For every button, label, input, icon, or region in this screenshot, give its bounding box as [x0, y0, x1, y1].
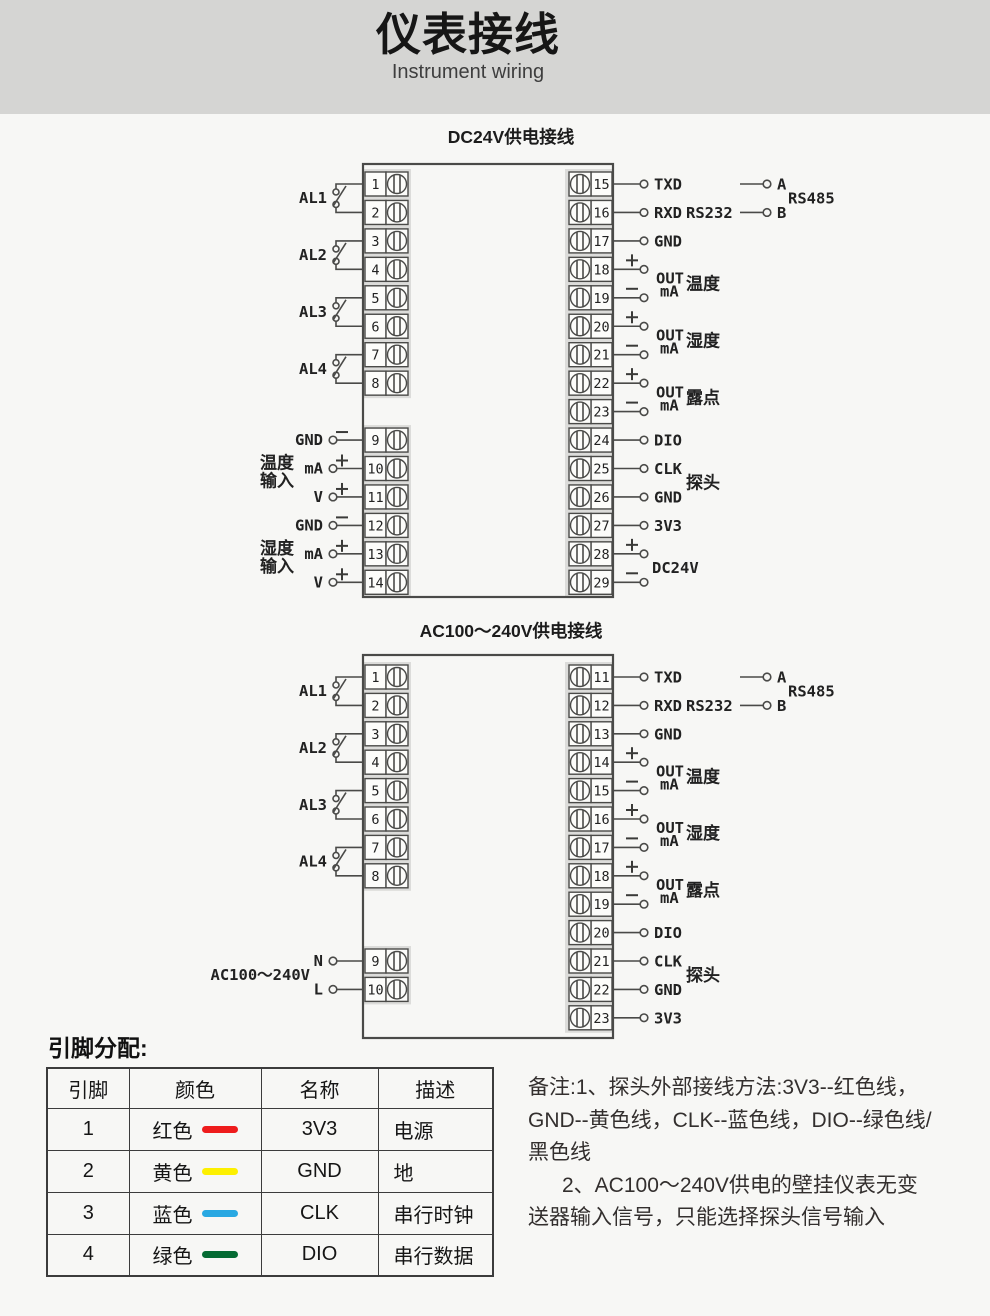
- svg-text:7: 7: [371, 840, 379, 856]
- wire-color-swatch: [202, 1168, 238, 1175]
- svg-text:GND: GND: [654, 488, 682, 506]
- ac-power-label: AC100～240V: [211, 966, 311, 984]
- svg-text:GND: GND: [654, 725, 682, 743]
- svg-text:L: L: [314, 980, 323, 998]
- alarm-label: AL2: [299, 246, 327, 264]
- svg-text:11: 11: [593, 670, 609, 686]
- wire-color-name: 红色: [153, 1115, 193, 1144]
- svg-text:GND: GND: [295, 431, 323, 449]
- pin-table-row: 1红色3V3电源: [47, 1108, 493, 1150]
- svg-text:mA: mA: [660, 889, 679, 907]
- pin-table-header-pin: 引脚: [47, 1068, 129, 1108]
- svg-text:V: V: [314, 573, 323, 591]
- svg-text:18: 18: [593, 869, 609, 885]
- svg-text:12: 12: [593, 698, 609, 714]
- svg-text:15: 15: [593, 177, 609, 193]
- svg-text:GND: GND: [654, 981, 682, 999]
- svg-text:14: 14: [593, 755, 609, 771]
- svg-text:mA: mA: [660, 339, 679, 357]
- signal-desc-cell: 串行数据: [378, 1234, 493, 1276]
- svg-text:mA: mA: [660, 396, 679, 414]
- diagram-title: DC24V供电接线: [448, 127, 575, 147]
- svg-text:TXD: TXD: [654, 669, 682, 687]
- alarm-label: AL3: [299, 796, 327, 814]
- wire-color-swatch: [202, 1126, 238, 1133]
- dc-power-label: DC24V: [652, 559, 699, 577]
- svg-text:17: 17: [593, 840, 609, 856]
- svg-text:20: 20: [593, 926, 609, 942]
- wire-color-cell: 绿色: [129, 1234, 261, 1276]
- signal-name-cell: GND: [261, 1150, 378, 1192]
- output-channel-label: 露点: [686, 880, 720, 900]
- svg-text:3: 3: [371, 234, 379, 250]
- probe-label: 探头: [686, 473, 720, 493]
- pin-table-header-desc: 描述: [378, 1068, 493, 1108]
- note-line: 备注:1、探头外部接线方法:3V3--红色线，: [528, 1072, 980, 1105]
- svg-text:A: A: [777, 176, 787, 194]
- pin-table-header-row: 引脚 颜色 名称 描述: [47, 1068, 493, 1108]
- rs485-label: RS485: [788, 683, 835, 701]
- svg-text:16: 16: [593, 205, 609, 221]
- pin-number-cell: 2: [47, 1150, 129, 1192]
- pin-table-row: 4绿色DIO串行数据: [47, 1234, 493, 1276]
- note-line: GND--黄色线，CLK--蓝色线，DIO--绿色线/: [528, 1105, 980, 1138]
- pin-table-header-color: 颜色: [129, 1068, 261, 1108]
- rs485-label: RS485: [788, 190, 835, 208]
- svg-text:1: 1: [371, 177, 379, 193]
- svg-text:mA: mA: [304, 545, 323, 563]
- svg-text:19: 19: [593, 291, 609, 307]
- svg-text:10: 10: [367, 462, 383, 478]
- note-line: 黑色线: [528, 1137, 980, 1170]
- svg-text:15: 15: [593, 784, 609, 800]
- svg-text:14: 14: [367, 575, 383, 591]
- svg-text:3: 3: [371, 727, 379, 743]
- svg-text:4: 4: [371, 262, 379, 278]
- wire-color-swatch: [202, 1210, 238, 1217]
- svg-text:29: 29: [593, 575, 609, 591]
- svg-text:21: 21: [593, 348, 609, 364]
- svg-text:19: 19: [593, 897, 609, 913]
- signal-desc-cell: 地: [378, 1150, 493, 1192]
- svg-text:GND: GND: [295, 516, 323, 534]
- alarm-label: AL2: [299, 739, 327, 757]
- svg-text:B: B: [777, 697, 786, 715]
- pin-table-body: 1红色3V3电源2黄色GND地3蓝色CLK串行时钟4绿色DIO串行数据: [47, 1108, 493, 1276]
- svg-text:CLK: CLK: [654, 460, 683, 478]
- svg-text:mA: mA: [660, 832, 679, 850]
- output-channel-label: 温度: [686, 766, 721, 786]
- signal-name-cell: DIO: [261, 1234, 378, 1276]
- note-line: 2、AC100～240V供电的壁挂仪表无变: [528, 1170, 980, 1203]
- alarm-label: AL1: [299, 189, 327, 207]
- wire-color-cell: 红色: [129, 1108, 261, 1150]
- svg-text:21: 21: [593, 954, 609, 970]
- alarm-label: AL4: [299, 853, 327, 871]
- pin-number-cell: 1: [47, 1108, 129, 1150]
- wire-color-cell: 蓝色: [129, 1192, 261, 1234]
- output-channel-label: 湿度: [686, 330, 721, 350]
- svg-text:B: B: [777, 204, 786, 222]
- wire-color-name: 绿色: [153, 1240, 193, 1269]
- ac100-240v-wiring-diagram: AC100～240V供电接线12345678910111213141516171…: [211, 621, 835, 1038]
- svg-text:6: 6: [371, 319, 379, 335]
- svg-text:27: 27: [593, 518, 609, 534]
- svg-text:CLK: CLK: [654, 953, 683, 971]
- probe-label: 探头: [686, 965, 720, 985]
- svg-text:26: 26: [593, 490, 609, 506]
- svg-text:mA: mA: [660, 283, 679, 301]
- svg-text:DIO: DIO: [654, 924, 682, 942]
- output-channel-label: 露点: [686, 387, 720, 407]
- signal-name-cell: CLK: [261, 1192, 378, 1234]
- output-channel-label: 温度: [686, 274, 721, 294]
- svg-text:10: 10: [367, 982, 383, 998]
- signal-desc-cell: 电源: [378, 1108, 493, 1150]
- signal-name-cell: 3V3: [261, 1108, 378, 1150]
- signal-desc-cell: 串行时钟: [378, 1192, 493, 1234]
- svg-text:N: N: [314, 952, 323, 970]
- svg-text:24: 24: [593, 433, 609, 449]
- svg-text:温度: 温度: [260, 453, 295, 473]
- pin-assignment-heading: 引脚分配:: [48, 1029, 148, 1063]
- wire-color-name: 蓝色: [153, 1199, 193, 1228]
- svg-text:25: 25: [593, 462, 609, 478]
- wiring-notes: 备注:1、探头外部接线方法:3V3--红色线，GND--黄色线，CLK--蓝色线…: [528, 1072, 980, 1235]
- svg-text:20: 20: [593, 319, 609, 335]
- svg-text:6: 6: [371, 812, 379, 828]
- pin-number-cell: 4: [47, 1234, 129, 1276]
- svg-text:5: 5: [371, 784, 379, 800]
- svg-text:3V3: 3V3: [654, 517, 682, 535]
- svg-text:2: 2: [371, 698, 379, 714]
- svg-text:4: 4: [371, 755, 379, 771]
- wire-color-swatch: [202, 1251, 238, 1258]
- svg-text:GND: GND: [654, 232, 682, 250]
- svg-text:17: 17: [593, 234, 609, 250]
- pin-assignment-table: 引脚 颜色 名称 描述 1红色3V3电源2黄色GND地3蓝色CLK串行时钟4绿色…: [46, 1067, 494, 1277]
- svg-text:3V3: 3V3: [654, 1009, 682, 1027]
- svg-text:8: 8: [371, 376, 379, 392]
- svg-text:mA: mA: [660, 775, 679, 793]
- wire-color-cell: 黄色: [129, 1150, 261, 1192]
- svg-text:18: 18: [593, 262, 609, 278]
- pin-table-header-name: 名称: [261, 1068, 378, 1108]
- svg-text:13: 13: [593, 727, 609, 743]
- svg-text:DIO: DIO: [654, 432, 682, 450]
- svg-text:22: 22: [593, 982, 609, 998]
- svg-text:8: 8: [371, 869, 379, 885]
- note-line: 送器输入信号，只能选择探头信号输入: [528, 1202, 980, 1235]
- svg-text:1: 1: [371, 670, 379, 686]
- svg-text:输入: 输入: [260, 556, 294, 576]
- svg-text:TXD: TXD: [654, 176, 682, 194]
- svg-text:12: 12: [367, 518, 383, 534]
- svg-text:湿度: 湿度: [260, 538, 295, 558]
- diagram-title: AC100～240V供电接线: [420, 621, 603, 641]
- alarm-label: AL4: [299, 360, 327, 378]
- pin-number-cell: 3: [47, 1192, 129, 1234]
- svg-text:11: 11: [367, 490, 383, 506]
- svg-text:RXD: RXD: [654, 697, 682, 715]
- svg-text:22: 22: [593, 376, 609, 392]
- svg-text:9: 9: [371, 433, 379, 449]
- wire-color-name: 黄色: [153, 1157, 193, 1186]
- svg-text:9: 9: [371, 954, 379, 970]
- svg-text:RXD: RXD: [654, 204, 682, 222]
- alarm-label: AL3: [299, 303, 327, 321]
- alarm-label: AL1: [299, 682, 327, 700]
- pin-table-row: 3蓝色CLK串行时钟: [47, 1192, 493, 1234]
- svg-text:A: A: [777, 669, 787, 687]
- svg-text:28: 28: [593, 547, 609, 563]
- dc24v-wiring-diagram: DC24V供电接线1234567891011121314151617181920…: [260, 127, 835, 597]
- rs232-label: RS232: [686, 204, 733, 222]
- svg-text:7: 7: [371, 348, 379, 364]
- svg-text:2: 2: [371, 205, 379, 221]
- svg-text:23: 23: [593, 1011, 609, 1027]
- svg-text:输入: 输入: [260, 471, 294, 491]
- svg-text:13: 13: [367, 547, 383, 563]
- svg-text:mA: mA: [304, 460, 323, 478]
- svg-text:23: 23: [593, 405, 609, 421]
- pin-table-row: 2黄色GND地: [47, 1150, 493, 1192]
- rs232-label: RS232: [686, 697, 733, 715]
- svg-text:16: 16: [593, 812, 609, 828]
- output-channel-label: 湿度: [686, 823, 721, 843]
- svg-text:V: V: [314, 488, 323, 506]
- svg-text:5: 5: [371, 291, 379, 307]
